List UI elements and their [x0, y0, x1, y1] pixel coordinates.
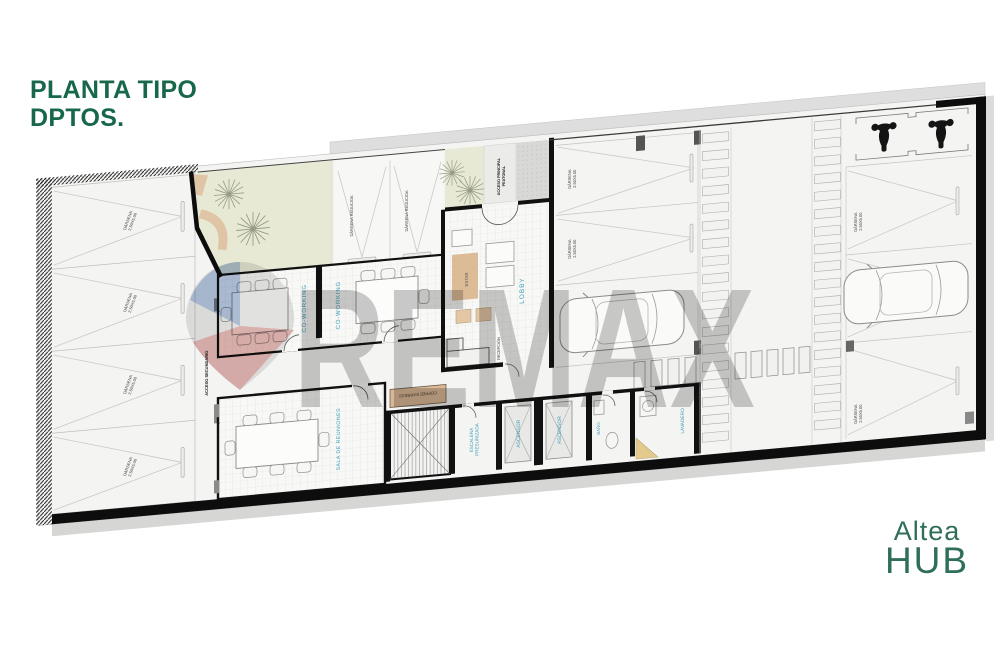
wall-right	[976, 96, 986, 440]
acceso-principal-line2: PEATONAL	[502, 165, 506, 187]
armchair	[452, 229, 472, 247]
darsena-size-label: 2.50X5.00	[858, 212, 863, 231]
floor-plan-page: PLANTA TIPO DPTOS.	[0, 0, 1000, 667]
brand-line2: HUB	[872, 543, 982, 578]
acceso-principal-line1: ACCESO PRINCIPAL	[497, 157, 501, 195]
remax-watermark-text: REMAX	[293, 254, 755, 444]
darsena-reducida-label: DÁRSENA REDUCIDA	[349, 195, 354, 237]
label-darsena: DÁRSENA 2.50X5.00	[567, 169, 577, 190]
boundary-hatch-left	[36, 177, 52, 525]
label-darsena: DÁRSENA 2.50X5.00	[853, 211, 863, 232]
plan-drawing: DÁRSENA 2.50X5.00 DÁRSENA 2.50X5.00 DÁRS…	[0, 0, 1000, 667]
darsena-size-label: 2.50X5.00	[858, 404, 863, 423]
darsena-reducida-label: DÁRSENA REDUCIDA	[404, 190, 409, 232]
label-darsena: DÁRSENA 2.50X5.00	[853, 403, 863, 424]
darsena-size-label: 2.50X5.00	[572, 169, 577, 188]
sidewalk-right	[986, 96, 994, 442]
brand-logo: Altea HUB	[872, 518, 982, 578]
reduced-parking: DÁRSENA REDUCIDA DÁRSENA REDUCIDA	[335, 151, 443, 268]
